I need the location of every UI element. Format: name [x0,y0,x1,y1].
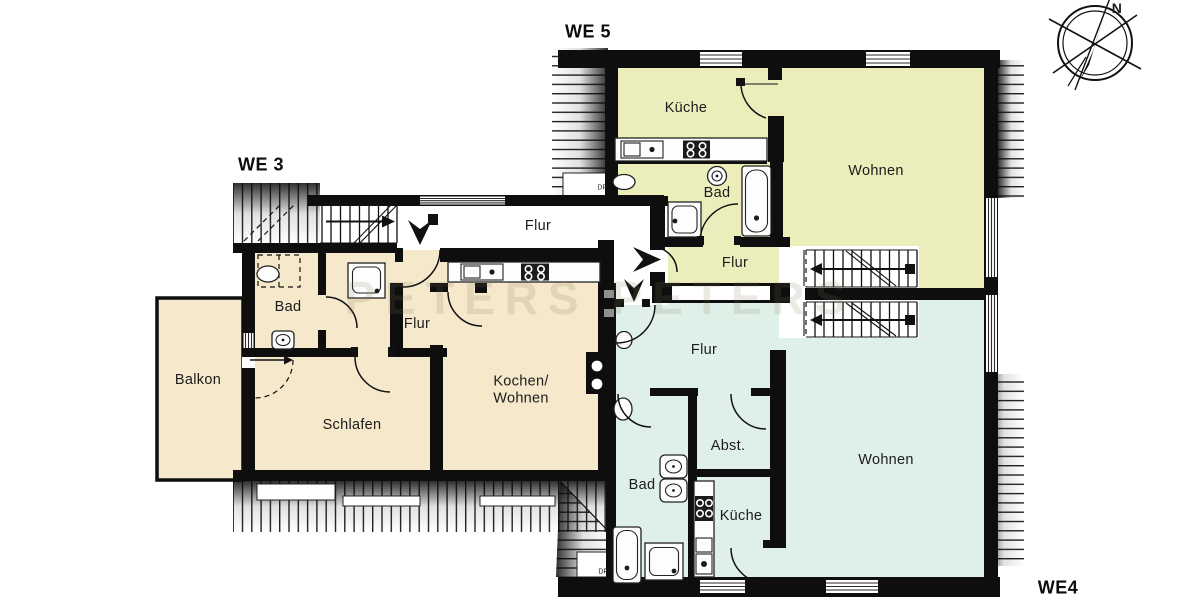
toilet-we5 [613,175,635,190]
room-label-bad-we5: Bad [704,185,731,201]
skylight-window [480,496,555,506]
toilet-we4 [614,398,632,420]
kochen-wohnen-line2: Wohnen [493,390,549,407]
room-label-abstellraum-we4: Abst. [711,438,746,454]
shower-we4 [645,543,683,580]
unit-label-we5: WE 5 [565,22,611,43]
room-label-kochen-wohnen-we3: Kochen/ Wohnen [493,373,549,406]
room-label-wohnen-we4: Wohnen [858,452,914,468]
skylight-label-we4: DF [598,569,607,576]
skylight-window [343,496,420,506]
toilet-we3 [257,266,279,282]
watermark: PETERS PETERS [345,271,856,325]
shower-we5 [668,202,701,237]
floor-plan: WE 3 WE 5 WE4 N Flur Küche Bad Wohnen Fl… [0,0,1200,600]
room-label-kueche-we5: Küche [665,100,708,116]
washbasin-flur-we4 [616,332,632,349]
stove-we5 [683,141,710,159]
room-label-bad-we3: Bad [275,299,302,315]
compass-icon [1049,0,1141,90]
room-label-flur-we4: Flur [691,342,717,358]
unit-label-we4: WE4 [1038,578,1079,599]
room-label-flur-we5: Flur [722,255,748,271]
unit-label-we3: WE 3 [238,155,284,176]
skylight-label-we5: DF [597,185,606,192]
room-label-corridor-flur: Flur [525,218,551,234]
room-label-schlafen-we3: Schlafen [323,417,382,433]
room-label-wohnen-we5: Wohnen [848,163,904,179]
compass-north-label: N [1112,0,1122,16]
kochen-wohnen-line1: Kochen/ [493,373,549,390]
room-label-kueche-we4: Küche [720,508,763,524]
room-label-bad-we4: Bad [629,477,656,493]
room-label-balkon-we3: Balkon [175,372,221,388]
skylight-window [257,484,335,500]
